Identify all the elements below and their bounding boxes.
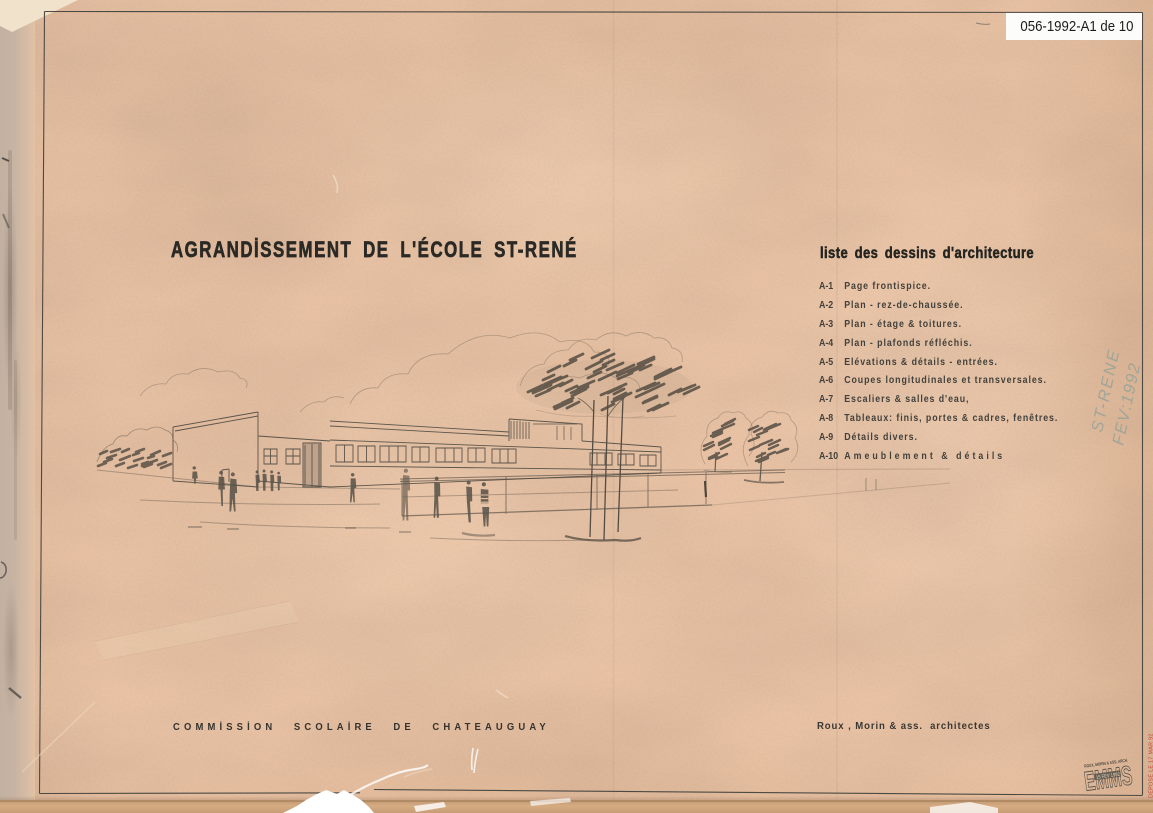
svg-text:DÉPOSÉ LE 17 MAR 92: DÉPOSÉ LE 17 MAR 92 (1148, 733, 1153, 798)
